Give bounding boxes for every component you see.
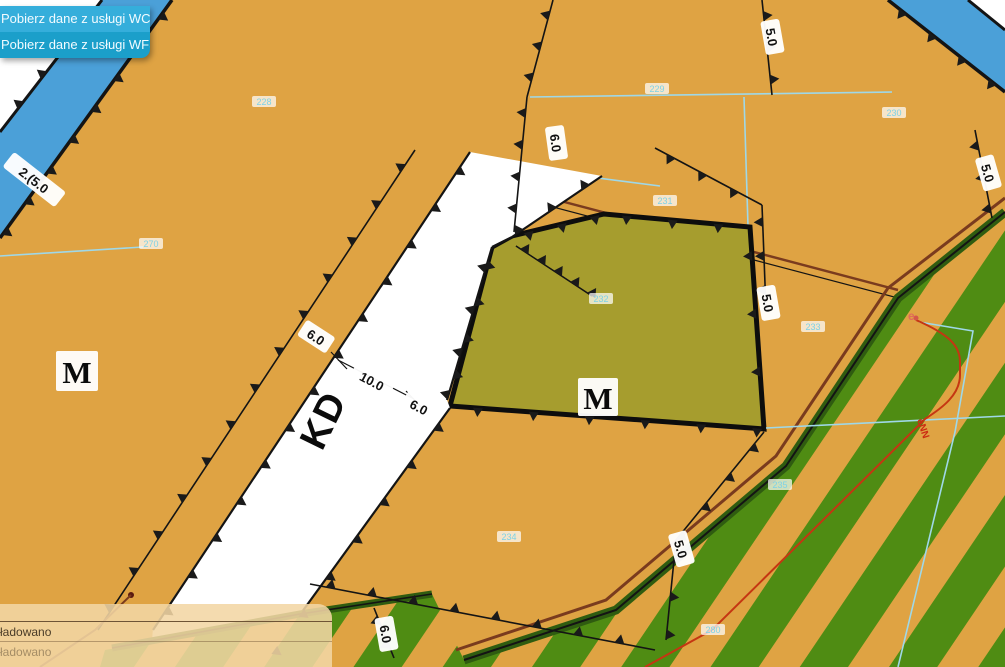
svg-text:6.0: 6.0 <box>377 624 395 644</box>
svg-text:5.0: 5.0 <box>763 27 781 47</box>
svg-text:6.0: 6.0 <box>547 133 564 153</box>
svg-text:230: 230 <box>886 108 901 118</box>
parcel-number: 232 <box>589 293 613 304</box>
parcel-number: 280 <box>701 624 725 635</box>
parcel-number: 231 <box>653 195 677 206</box>
svg-text:270: 270 <box>143 239 158 249</box>
svg-text:M: M <box>583 381 612 416</box>
status-panel-header <box>0 604 332 621</box>
context-menu: Pobierz dane z usługi WCS Pobierz dane z… <box>0 6 150 58</box>
svg-text:229: 229 <box>649 84 664 94</box>
parcel-number: 229 <box>645 83 669 94</box>
map-app-window: M M KD 2.(5.0 6.0 10.0 6.0 6.0 5.0 5.0 <box>0 0 1005 667</box>
map-canvas[interactable]: M M KD 2.(5.0 6.0 10.0 6.0 6.0 5.0 5.0 <box>0 0 1005 667</box>
zone-label-m-selected: M <box>578 378 618 416</box>
svg-text:280: 280 <box>705 625 720 635</box>
menu-item-download-wcs[interactable]: Pobierz dane z usługi WCS <box>0 6 150 32</box>
menu-item-download-wfs[interactable]: Pobierz dane z usługi WFS <box>0 32 150 58</box>
svg-text:232: 232 <box>593 294 608 304</box>
svg-text:231: 231 <box>657 196 672 206</box>
svg-text:235: 235 <box>772 480 787 490</box>
svg-text:234: 234 <box>501 532 516 542</box>
parcel-number: 228 <box>252 96 276 107</box>
parcel-number: 270 <box>139 238 163 249</box>
svg-text:233: 233 <box>805 322 820 332</box>
parcel-number: 230 <box>882 107 906 118</box>
zone-label-m-left: M <box>56 351 98 391</box>
parcel-number: 235 <box>768 479 792 490</box>
status-panel: ładowano ładowano <box>0 604 332 667</box>
status-row-loaded: ładowano <box>0 641 332 661</box>
svg-text:M: M <box>62 355 91 390</box>
parcel-number: 234 <box>497 531 521 542</box>
status-row-loaded: ładowano <box>0 621 332 641</box>
parcel-number: 233 <box>801 321 825 332</box>
e-point-marker: e <box>908 309 915 323</box>
svg-text:228: 228 <box>256 97 271 107</box>
svg-text:5.0: 5.0 <box>759 293 777 313</box>
